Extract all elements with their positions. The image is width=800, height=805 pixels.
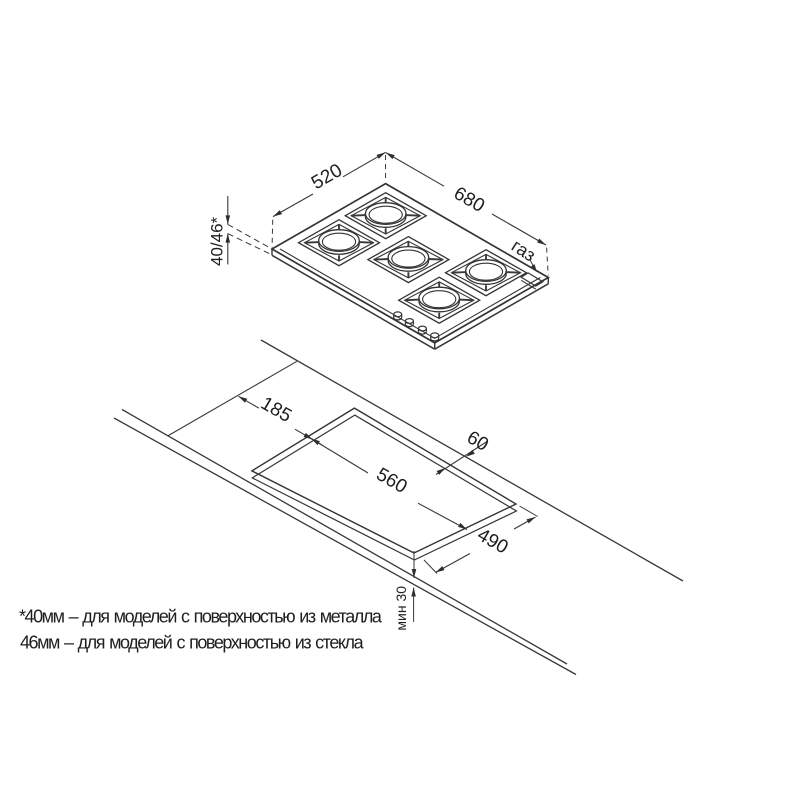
svg-text:46мм – для моделей с поверхно: 46мм – для моделей с поверхностью из сте… xyxy=(20,633,365,653)
svg-text:40/46*: 40/46* xyxy=(207,216,226,266)
svg-text:*40мм – для моделей с поверхн: *40мм – для моделей с поверхностью из ме… xyxy=(19,607,383,627)
svg-text:мин 30: мин 30 xyxy=(393,586,409,631)
